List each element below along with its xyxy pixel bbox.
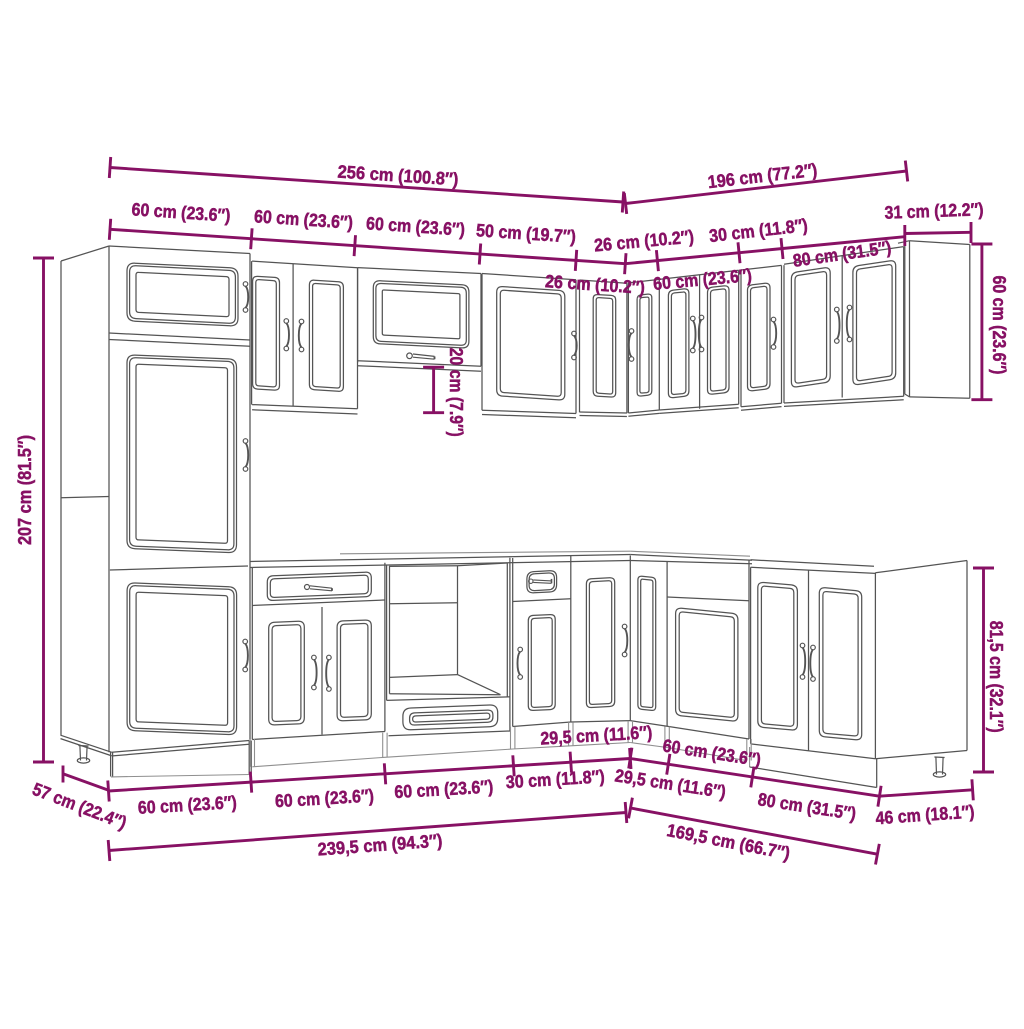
svg-text:20 cm (7.9″): 20 cm (7.9″) xyxy=(446,348,466,437)
svg-text:81,5 cm (32.1″): 81,5 cm (32.1″) xyxy=(986,621,1006,733)
svg-text:31 cm (12.2″): 31 cm (12.2″) xyxy=(884,199,984,222)
svg-text:60 cm (23.6″): 60 cm (23.6″) xyxy=(989,276,1009,375)
svg-text:207 cm (81.5″): 207 cm (81.5″) xyxy=(15,435,35,545)
